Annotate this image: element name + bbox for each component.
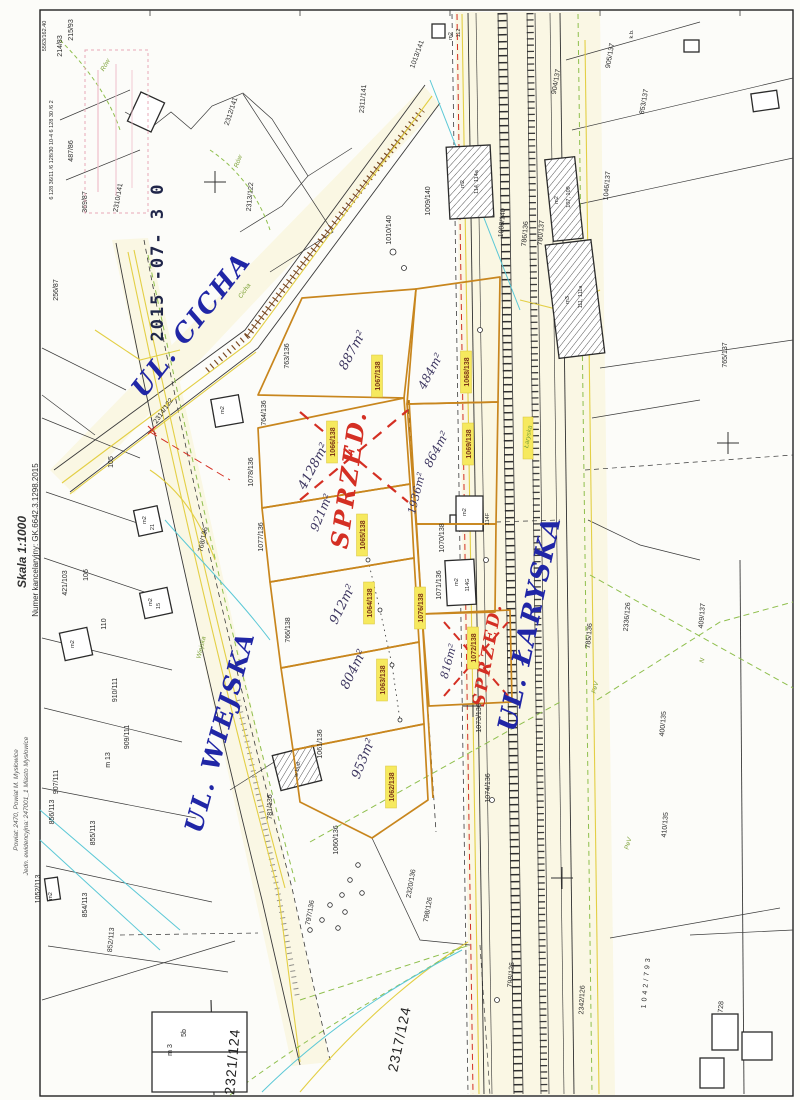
building-label: m2 bbox=[460, 180, 466, 188]
parcel-number: 2336/126 bbox=[623, 602, 633, 632]
building-label: m3 bbox=[565, 296, 571, 304]
parcel-highlight: 1065/138 bbox=[360, 520, 367, 549]
parcel-number: 1009/140 bbox=[425, 186, 432, 215]
building bbox=[432, 24, 445, 38]
area-label: 804m² bbox=[338, 647, 370, 692]
parcel-highlight: 1069/138 bbox=[466, 429, 473, 458]
parcel-highlight: 1068/138 bbox=[464, 357, 471, 386]
parcel-number: 1078/136 bbox=[248, 457, 255, 486]
parcel-number: 105 bbox=[108, 456, 115, 468]
parcel-number: 2312/141 bbox=[224, 96, 240, 126]
case-number: Numer kancelaryjny: GK.6642.3.1298.2015 bbox=[31, 463, 40, 617]
building-label: m2 bbox=[554, 196, 560, 204]
building-label: m2 bbox=[70, 640, 76, 648]
parcel-number: 1077/136 bbox=[258, 522, 265, 551]
margin-notes: 5563/162.40 6 128 36/11 /6 128/30 10-4 6… bbox=[13, 21, 55, 877]
parcel-number-large: 2317/124 bbox=[384, 1005, 413, 1073]
parcel-number: 2311/141 bbox=[359, 84, 368, 113]
parcel-number: 487/86 bbox=[68, 140, 75, 162]
parcel-number: 852/113 bbox=[107, 927, 116, 952]
parcel-highlight: 1062/138 bbox=[389, 772, 396, 801]
building bbox=[445, 559, 476, 605]
area-label: 1936m² bbox=[405, 471, 428, 516]
house-number: 112 bbox=[456, 29, 462, 38]
scanned-cadastral-map: SPRZED. SPRZED. 1067/138 1068/138 1069/1… bbox=[0, 0, 800, 1100]
house-number: 114F bbox=[485, 512, 491, 525]
building bbox=[450, 515, 456, 524]
building bbox=[700, 1058, 724, 1088]
unit-note: Jedn. ewidencyjna: 247001_1 Miasto Mysło… bbox=[23, 736, 30, 876]
building-label: m2 bbox=[48, 892, 54, 900]
parcel-number: 728 bbox=[718, 1001, 726, 1013]
parcel-number: 781/136 bbox=[267, 794, 274, 819]
parcel-number: 855/113 bbox=[90, 821, 97, 846]
date-stamp: 2015 -07- 3 0 bbox=[148, 182, 168, 341]
building bbox=[59, 627, 92, 660]
building bbox=[211, 395, 243, 427]
house-number: 114G bbox=[465, 578, 471, 591]
parcel-number: 215/93 bbox=[68, 19, 75, 41]
house-number: 15 bbox=[156, 603, 162, 609]
county-note: Powiat: 2470, Powiat M. Mysłowice bbox=[13, 749, 20, 851]
building bbox=[127, 92, 164, 132]
parcel-highlight: 1063/138 bbox=[380, 665, 387, 694]
parcel-number: 256/87 bbox=[53, 279, 60, 301]
parcel-highlight: 1066/138 bbox=[330, 427, 337, 456]
building-label: k.b. bbox=[629, 29, 635, 38]
parcel-highlight: 1067/138 bbox=[375, 361, 382, 390]
parcel-number: 766/138 bbox=[285, 617, 292, 642]
parcel-number: 1046/137 bbox=[603, 171, 613, 201]
building-label: m2 bbox=[148, 598, 154, 606]
parcel-number: 797/136 bbox=[305, 900, 316, 926]
parcel-number: 2310/141 bbox=[113, 183, 125, 213]
building-label: m2 bbox=[454, 578, 460, 586]
parcel-number: 798/126 bbox=[423, 897, 434, 923]
map-scale: Skala 1:1000 bbox=[15, 516, 29, 588]
ditch-label: Rów bbox=[233, 153, 244, 169]
faded-stamp bbox=[85, 50, 148, 213]
parcel-number: 1070/138 bbox=[439, 523, 446, 552]
parcel-highlight: 1064/138 bbox=[367, 588, 374, 617]
house-number: 107, 109 bbox=[566, 186, 572, 207]
parcel-number: 907/111 bbox=[53, 770, 60, 794]
area-label: 864m² bbox=[421, 428, 452, 469]
parcel-number: 421/103 bbox=[62, 570, 69, 595]
parcel-number: 214/83 bbox=[57, 35, 64, 57]
parcel-number: 106 bbox=[83, 569, 90, 581]
parcel-number: 1042/793 bbox=[641, 955, 653, 1009]
parcel-number: 2313/122 bbox=[246, 182, 256, 212]
building-label: m2 bbox=[220, 406, 226, 414]
parcel-number: 910/111 bbox=[112, 678, 119, 702]
date-stamp-text: 2015 -07- 3 0 bbox=[148, 182, 168, 341]
building bbox=[712, 1014, 738, 1050]
house-number: 111, 111a bbox=[578, 285, 584, 309]
house-number: 21 bbox=[150, 524, 156, 530]
land-use-label: PeV bbox=[624, 836, 634, 850]
ditch-label: Rów bbox=[99, 57, 112, 73]
house-number: 114, 114a bbox=[474, 169, 480, 194]
scan-code: 5563/162.40 bbox=[42, 21, 48, 52]
parcel-number: 1061/136 bbox=[317, 729, 324, 758]
parcel-number: 1060/136 bbox=[333, 825, 340, 854]
building-label: m2 bbox=[462, 508, 468, 516]
parcel-number: 1010/140 bbox=[386, 215, 393, 244]
parcel-number: 856/113 bbox=[49, 800, 56, 825]
parcel-highlight: 1076/138 bbox=[418, 593, 425, 622]
building-label: m 13 bbox=[105, 752, 112, 768]
building-label: 5b bbox=[181, 1029, 188, 1037]
building bbox=[742, 1032, 772, 1060]
parcel-number: 854/113 bbox=[82, 893, 89, 918]
parcel-number: 409/137 bbox=[698, 603, 707, 629]
parcel-number: 765/137 bbox=[722, 342, 729, 367]
building bbox=[446, 145, 494, 219]
parcel-number: 853/137 bbox=[639, 89, 650, 115]
building bbox=[456, 496, 483, 531]
parcel-number: 400/135 bbox=[659, 711, 668, 737]
area-label: 4128m² bbox=[295, 440, 332, 493]
parcel-number: 1013/141 bbox=[409, 39, 426, 69]
parcel-number: 1052/113 bbox=[35, 875, 42, 904]
parcel-number: 1073/136 bbox=[476, 703, 483, 732]
parcel-number: 764/136 bbox=[261, 400, 268, 425]
parcel-number: 763/136 bbox=[284, 343, 291, 368]
area-label: 484m² bbox=[415, 350, 446, 392]
building-label: m 3 bbox=[167, 1044, 174, 1056]
grid-coordinates: 6 128 36/11 /6 128/30 10-4 6 128 30 /6 2 bbox=[49, 100, 55, 199]
parcel-number: 110 bbox=[101, 618, 108, 629]
building bbox=[751, 90, 779, 111]
building-label: m2 bbox=[448, 32, 454, 40]
area-label: 912m² bbox=[327, 582, 359, 627]
building bbox=[684, 40, 699, 52]
parcel-number: 410/135 bbox=[661, 812, 670, 838]
parcel-number: 905/137 bbox=[605, 43, 616, 69]
land-use-label: N bbox=[699, 657, 707, 664]
parcel-number: 1071/136 bbox=[436, 570, 443, 599]
parcel-number: 909/111 bbox=[124, 725, 131, 749]
building bbox=[134, 506, 163, 536]
parcel-highlight: 1072/138 bbox=[471, 633, 478, 662]
area-label: 887m² bbox=[336, 328, 369, 372]
parcel-number: 2320/136 bbox=[406, 869, 418, 899]
area-label: 953m² bbox=[349, 736, 379, 781]
area-label: 816m² bbox=[438, 642, 460, 680]
building-label: m2 bbox=[142, 516, 148, 524]
parcel-number: 1074/136 bbox=[485, 773, 492, 802]
